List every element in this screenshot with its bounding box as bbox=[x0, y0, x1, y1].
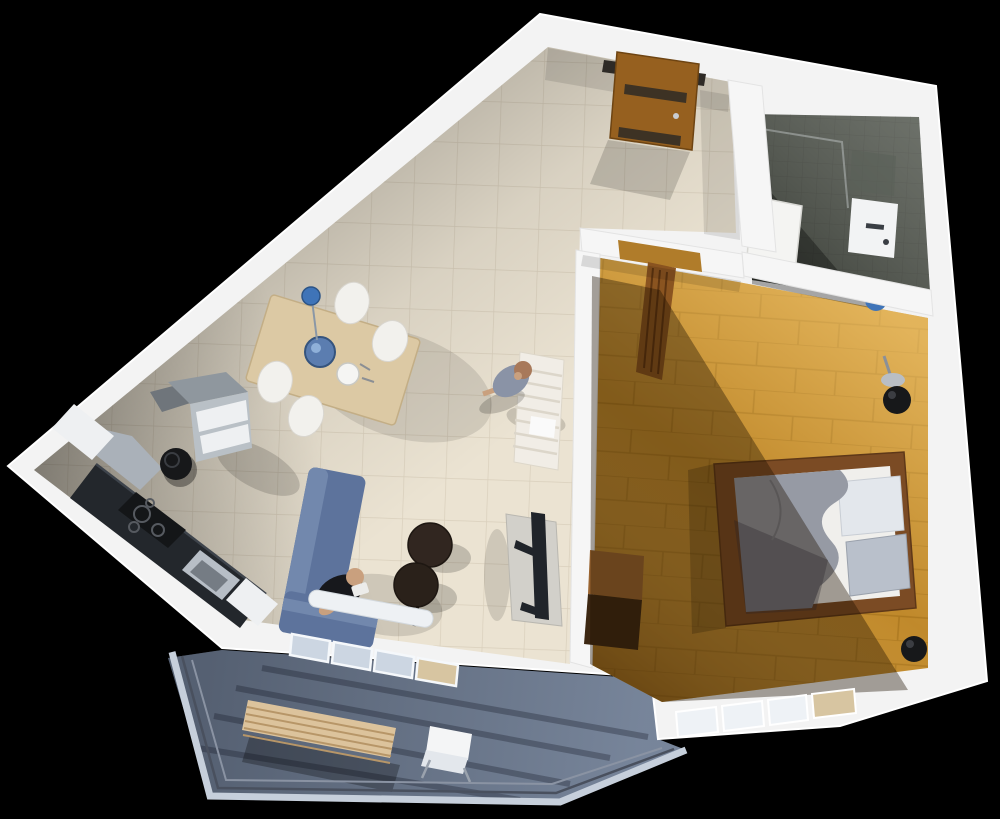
trash-bin-body bbox=[160, 448, 192, 480]
bathroom-mirror bbox=[850, 150, 896, 196]
bedroom-window-pane-3 bbox=[768, 695, 808, 725]
sink-drain bbox=[883, 239, 889, 245]
lamp-sphere-2 bbox=[901, 636, 927, 662]
floorplan-render bbox=[0, 0, 1000, 819]
man-head bbox=[346, 568, 364, 586]
fruit-bowl bbox=[305, 337, 335, 367]
tv-stand-shadow bbox=[484, 529, 510, 621]
lamp-sphere-highlight bbox=[888, 391, 896, 399]
bedroom-window-pane-2 bbox=[722, 701, 764, 731]
pendant-lamp bbox=[302, 287, 320, 305]
lamp-sphere-2-highlight bbox=[906, 640, 914, 648]
entry-door-handle bbox=[673, 113, 679, 119]
bedroom-window-pane-open bbox=[812, 689, 856, 718]
lamp-sphere bbox=[883, 386, 911, 414]
fruit-bowl-highlight bbox=[311, 343, 321, 353]
bathroom-sink bbox=[848, 150, 898, 258]
pillow-2 bbox=[846, 534, 910, 596]
coffee-table-1 bbox=[408, 523, 452, 567]
woman-face bbox=[514, 372, 522, 380]
floor-lamp-2 bbox=[901, 636, 927, 662]
lamp-disc bbox=[881, 373, 905, 387]
coffee-table-2 bbox=[394, 563, 438, 607]
floorplan-svg bbox=[0, 0, 1000, 819]
dinner-plate bbox=[337, 363, 359, 385]
bedroom-window-pane-1 bbox=[676, 707, 718, 737]
